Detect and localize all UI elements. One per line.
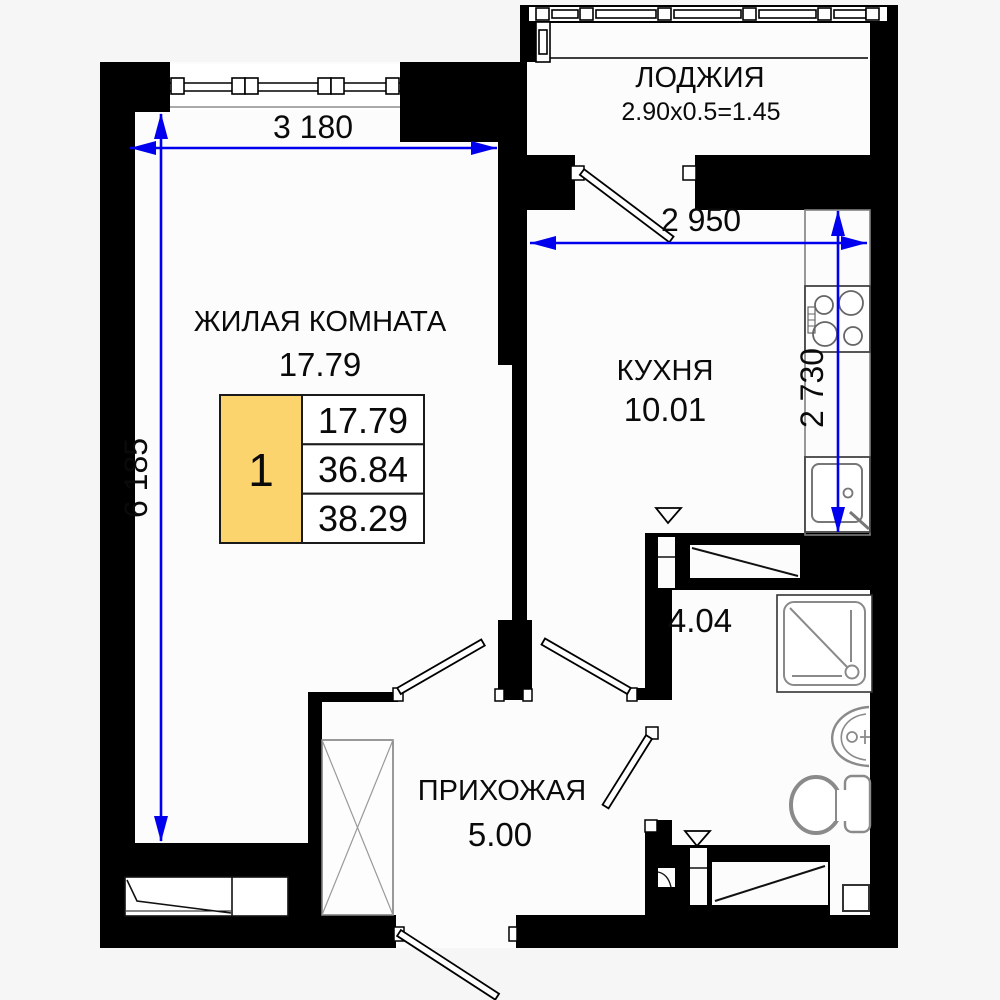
hallway-name: ПРИХОЖАЯ — [418, 775, 586, 807]
loggia-name: ЛОДЖИЯ — [635, 62, 764, 94]
floor-plan: 3 180 6 185 2 950 2 730 ЖИЛАЯ КОМНАТА 17… — [0, 0, 1000, 1000]
kitchen-area: 10.01 — [624, 391, 707, 428]
legend-living-area: 17.79 — [318, 400, 408, 441]
dim-kitchen-depth-label: 2 730 — [794, 348, 830, 428]
wardrobe-icon — [322, 740, 393, 915]
legend-total-area: 38.29 — [318, 498, 408, 539]
loggia-size: 2.90x0.5=1.45 — [621, 98, 780, 126]
dim-kitchen-width-label: 2 950 — [661, 202, 741, 238]
toilet-icon — [791, 776, 870, 833]
washing-machine-icon — [843, 885, 869, 911]
living-room-area: 17.79 — [279, 346, 362, 383]
legend-rooms-count: 1 — [248, 444, 274, 496]
floor-plan-canvas: 3 180 6 185 2 950 2 730 ЖИЛАЯ КОМНАТА 17… — [0, 0, 1000, 1000]
dim-living-width-label: 3 180 — [273, 109, 353, 145]
area-legend: 1 17.79 36.84 38.29 — [220, 395, 424, 543]
legend-area-without-loggia: 36.84 — [318, 449, 408, 490]
hallway-area: 5.00 — [468, 816, 532, 853]
shower-icon — [777, 595, 872, 692]
bed-niche — [125, 877, 288, 916]
living-window-icon — [170, 64, 400, 110]
kitchen-name: КУХНЯ — [617, 355, 714, 387]
dim-living-depth-label: 6 185 — [118, 438, 154, 518]
living-room-name: ЖИЛАЯ КОМНАТА — [194, 306, 447, 338]
bathroom-area: 4.04 — [668, 602, 732, 639]
